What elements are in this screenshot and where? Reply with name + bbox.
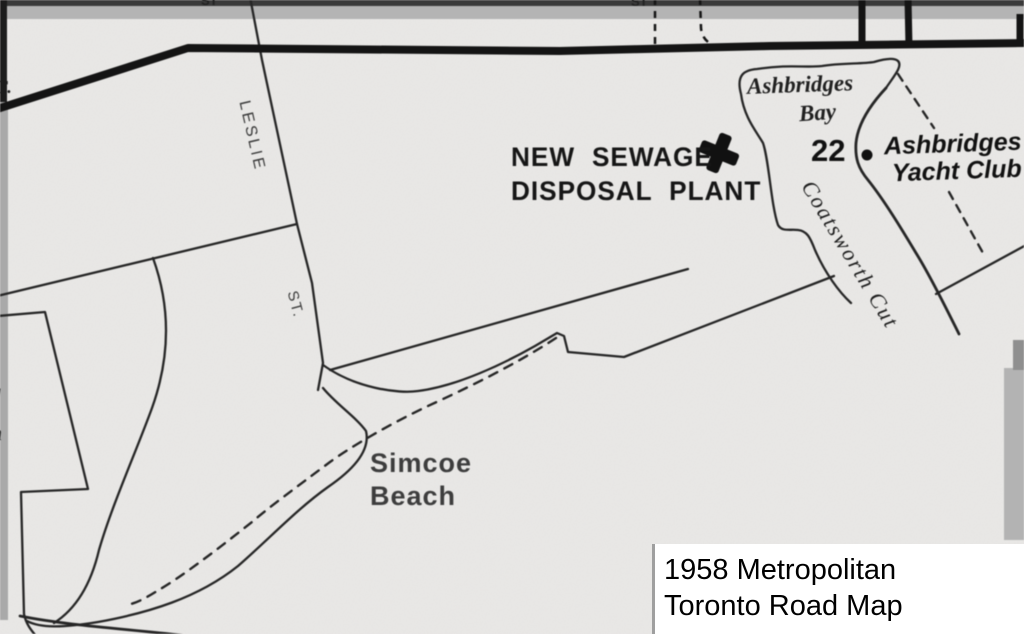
map-linework [0,0,1024,634]
ashbridges-bay-label-line1: Ashbridges [747,70,854,100]
caption-line1: 1958 Metropolitan [664,552,1024,588]
left-edge-text-fragment-1: g [0,381,1,404]
left-edge-text-fragment-2: n [0,423,2,446]
yacht-club-label-line2: Yacht Club [892,155,1023,189]
top-gray-band [0,6,1024,19]
right-edge-gray-strip [1004,368,1024,540]
top-edge-text-fragment-2: ST [631,0,648,9]
map-artwork-layer: NEW SEWAGE DISPOSAL PLANT Ashbridges Bay… [0,0,1024,634]
route-number-label: 22 [811,133,845,169]
vertical-road-east [908,0,909,47]
simcoe-beach-label-line2: Beach [370,481,456,512]
right-edge-dark-strip [1013,340,1024,370]
sewage-plant-label-line1: NEW SEWAGE [511,142,713,173]
sewage-plant-label-line2: DISPOSAL PLANT [511,176,761,207]
left-edge-street-fragment: T. [0,77,11,98]
top-edge-strip [0,0,1024,6]
ashbridges-bay-label-line2: Bay [798,99,837,128]
caption-box: 1958 Metropolitan Toronto Road Map [652,544,1024,634]
caption-line2: Toronto Road Map [664,588,1024,624]
simcoe-beach-label-line1: Simcoe [370,448,472,479]
map-canvas: NEW SEWAGE DISPOSAL PLANT Ashbridges Bay… [0,0,1024,634]
top-edge-text-fragment-1: ST [201,0,218,8]
paper-background [0,0,1024,634]
yacht-club-marker-dot [862,150,873,161]
left-edge-gray-strip [0,102,8,620]
